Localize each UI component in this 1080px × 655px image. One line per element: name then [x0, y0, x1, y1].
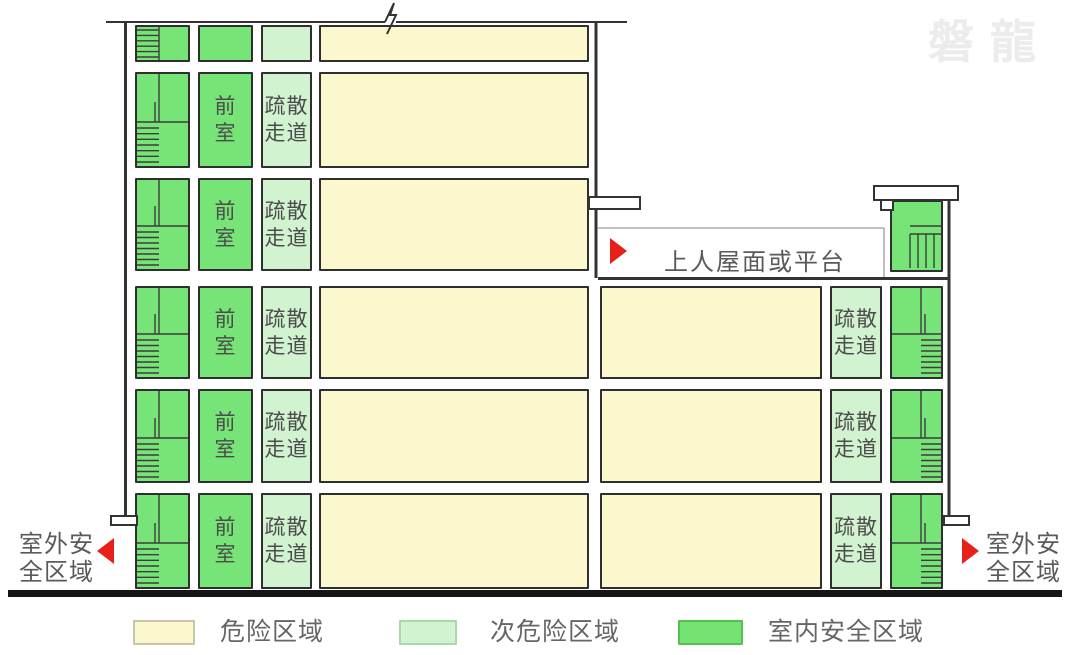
wing-corridor-cell-label: 疏散走道 — [834, 514, 878, 568]
corridor-cell: 疏散走道 — [261, 389, 312, 483]
ground-line — [8, 590, 1062, 597]
legend-swatch-sub-danger — [399, 620, 457, 645]
front-room-cell-label: 前室 — [215, 409, 237, 463]
outdoor-safe-area-label-left: 室外安 全区域 — [6, 531, 94, 587]
stair-flight-icon — [137, 27, 188, 60]
corridor-cell-label-line2: 走道 — [265, 436, 309, 463]
front-room-cell-label-line2: 室 — [215, 333, 237, 360]
danger-room-cell — [319, 25, 589, 62]
wing-corridor-cell-label-line2: 走道 — [834, 333, 878, 360]
corridor-cell: 疏散走道 — [261, 72, 312, 168]
watermark: 磐龍 — [928, 6, 1052, 72]
outdoor-right-line2: 全区域 — [986, 559, 1078, 587]
corridor-cell-label-line1: 疏散 — [265, 198, 309, 225]
outdoor-left-line2: 全区域 — [6, 559, 94, 587]
front-room-cell-label-line1: 前 — [215, 514, 237, 541]
front-room-cell: 前室 — [198, 493, 253, 589]
corridor-cell-label-line1: 疏散 — [265, 409, 309, 436]
wing-stairwell-cell — [890, 493, 943, 589]
danger-room-cell — [319, 286, 589, 379]
front-room-cell-label: 前室 — [215, 514, 237, 568]
wing-corridor-cell: 疏散走道 — [830, 493, 882, 589]
front-room-cell: 前室 — [198, 389, 253, 483]
corridor-cell-label: 疏散走道 — [265, 409, 309, 463]
danger-room-cell — [319, 389, 589, 483]
front-room-cell-label-line2: 室 — [215, 541, 237, 568]
corridor-cell-label-line1: 疏散 — [265, 93, 309, 120]
wing-corridor-cell-label-line2: 走道 — [834, 436, 878, 463]
wing-corridor-cell-label-line2: 走道 — [834, 541, 878, 568]
corridor-cell-label-line2: 走道 — [265, 120, 309, 147]
front-room-cell-label: 前室 — [215, 306, 237, 360]
front-room-cell-label-line2: 室 — [215, 225, 237, 252]
outdoor-safe-left-arrow-icon — [97, 538, 114, 564]
wing-corridor-cell-label-line1: 疏散 — [834, 306, 878, 333]
corridor-cell: 疏散走道 — [261, 178, 312, 271]
corridor-cell-label: 疏散走道 — [265, 93, 309, 147]
stair-flight-icon — [137, 391, 188, 481]
corridor-cell-label: 疏散走道 — [265, 514, 309, 568]
stair-flight-icon — [137, 495, 188, 587]
wing-corridor-cell-label-line1: 疏散 — [834, 514, 878, 541]
front-room-cell: 前室 — [198, 286, 253, 379]
platform-label: 上人屋面或平台 — [630, 242, 880, 277]
front-room-cell-label: 前室 — [215, 198, 237, 252]
left-exit-step — [111, 516, 137, 525]
corridor-cell-label-line2: 走道 — [265, 225, 309, 252]
front-room-cell: 前室 — [198, 178, 253, 271]
stairwell-cell — [135, 286, 190, 379]
outdoor-safe-right-arrow-icon — [962, 538, 979, 564]
front-room-cell: 前室 — [198, 72, 253, 168]
corridor-cell — [261, 25, 312, 62]
front-room-cell-label-line1: 前 — [215, 198, 237, 225]
stair-bulkhead-cap — [874, 186, 958, 200]
stair-flight-icon — [137, 74, 188, 166]
corridor-cell-label-line2: 走道 — [265, 333, 309, 360]
front-room-cell-label-line2: 室 — [215, 436, 237, 463]
stairwell-cell — [135, 389, 190, 483]
wing-stairwell-cell — [890, 389, 943, 483]
stairwell-cell — [135, 178, 190, 271]
stair-flight-icon — [892, 288, 941, 377]
wing-corridor-cell-label: 疏散走道 — [834, 306, 878, 360]
fire-evacuation-section-diagram: 前室疏散走道前室疏散走道前室疏散走道疏散走道前室疏散走道疏散走道前室疏散走道疏散… — [0, 0, 1080, 655]
front-room-cell-label-line1: 前 — [215, 409, 237, 436]
stair-flight-icon — [137, 288, 188, 377]
legend-label-indoor-safe: 室内安全区域 — [768, 616, 924, 648]
legend-swatch-danger — [133, 620, 195, 645]
front-room-cell-label-line2: 室 — [215, 120, 237, 147]
danger-room-cell — [319, 72, 589, 168]
corridor-cell-label-line1: 疏散 — [265, 514, 309, 541]
outdoor-left-line1: 室外安 — [6, 531, 94, 559]
legend-swatch-indoor-safe — [678, 620, 743, 645]
stair-bulkhead-cell — [890, 200, 943, 272]
stairwell-cell — [135, 493, 190, 589]
stair-flight-icon — [892, 202, 941, 270]
stairwell-cell — [135, 72, 190, 168]
platform-arrow-icon — [610, 238, 627, 264]
stairwell-cell — [135, 25, 190, 62]
wing-danger-room-cell — [600, 286, 822, 379]
legend-label-sub-danger: 次危险区域 — [490, 616, 620, 648]
corridor-cell-label-line2: 走道 — [265, 541, 309, 568]
wing-corridor-cell-label: 疏散走道 — [834, 409, 878, 463]
wing-corridor-cell: 疏散走道 — [830, 286, 882, 379]
wing-danger-room-cell — [600, 389, 822, 483]
danger-room-cell — [319, 178, 589, 271]
outdoor-right-line1: 室外安 — [986, 531, 1078, 559]
right-exit-step — [944, 516, 969, 525]
front-room-cell-label: 前室 — [215, 93, 237, 147]
corridor-cell: 疏散走道 — [261, 493, 312, 589]
front-room-cell-label-line1: 前 — [215, 93, 237, 120]
wing-corridor-cell-label-line1: 疏散 — [834, 409, 878, 436]
wing-corridor-cell: 疏散走道 — [830, 389, 882, 483]
stair-flight-icon — [892, 391, 941, 481]
corridor-cell-label-line1: 疏散 — [265, 306, 309, 333]
stair-flight-icon — [892, 495, 941, 587]
tower-parapet-coping — [589, 197, 640, 209]
corridor-cell: 疏散走道 — [261, 286, 312, 379]
front-room-cell-label-line1: 前 — [215, 306, 237, 333]
wing-stairwell-cell — [890, 286, 943, 379]
legend-label-danger: 危险区域 — [220, 616, 324, 648]
danger-room-cell — [319, 493, 589, 589]
corridor-cell-label: 疏散走道 — [265, 198, 309, 252]
stair-flight-icon — [137, 180, 188, 269]
front-room-cell — [198, 25, 253, 62]
wing-danger-room-cell — [600, 493, 822, 589]
outdoor-safe-area-label-right: 室外安 全区域 — [986, 531, 1078, 587]
corridor-cell-label: 疏散走道 — [265, 306, 309, 360]
